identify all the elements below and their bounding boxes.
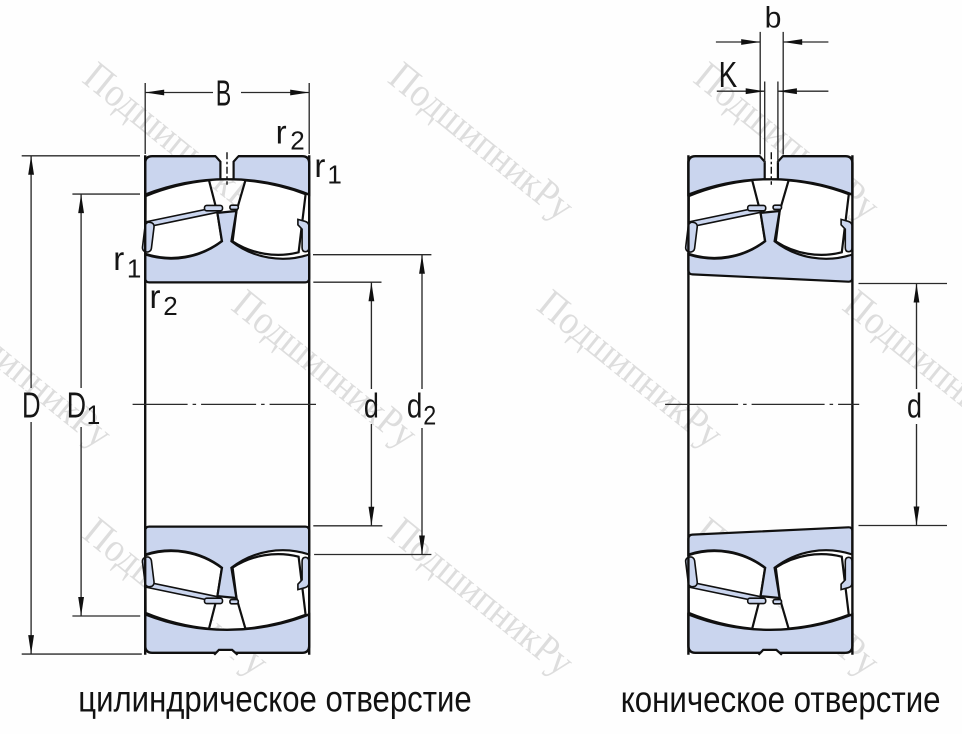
svg-text:d: d [907, 388, 922, 426]
svg-text:d: d [407, 388, 423, 426]
svg-text:r: r [276, 114, 287, 151]
svg-text:2: 2 [423, 401, 436, 431]
svg-text:цилиндрическое отверстие: цилиндрическое отверстие [78, 679, 471, 720]
svg-text:1: 1 [327, 160, 341, 190]
svg-text:D: D [67, 385, 86, 426]
svg-text:коническое отверстие: коническое отверстие [621, 679, 941, 720]
svg-text:2: 2 [163, 291, 177, 321]
svg-text:b: b [765, 1, 782, 34]
svg-text:r: r [150, 278, 161, 315]
svg-text:B: B [216, 72, 232, 113]
svg-text:2: 2 [290, 125, 304, 155]
svg-text:D: D [22, 385, 41, 426]
svg-text:1: 1 [127, 254, 141, 284]
svg-text:K: K [719, 54, 738, 95]
svg-text:d: d [364, 388, 379, 426]
svg-text:r: r [113, 240, 124, 277]
svg-text:r: r [314, 147, 325, 184]
svg-text:1: 1 [87, 400, 101, 430]
